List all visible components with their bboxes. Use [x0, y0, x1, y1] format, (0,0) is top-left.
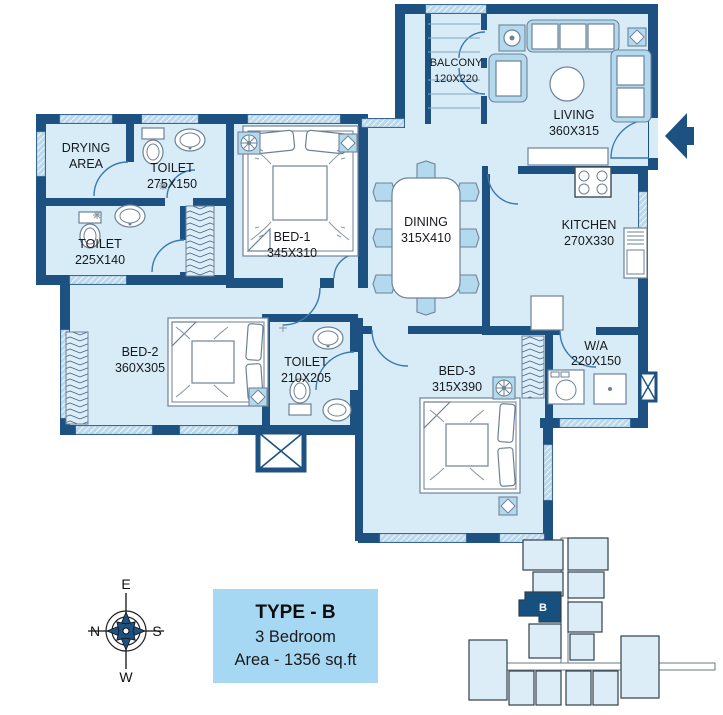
svg-text:345X310: 345X310 [267, 246, 317, 260]
svg-text:360X305: 360X305 [115, 361, 165, 375]
svg-text:315X390: 315X390 [432, 380, 482, 394]
compass: E N S W [76, 576, 176, 688]
label-kitchen: KITCHEN [562, 218, 617, 232]
label-toilet-mid: TOILET [284, 355, 328, 369]
area-label: Area - 1356 sq.ft [235, 651, 357, 670]
floor-plan-drawing: DRYING AREA TOILET 275X150 TOILET 225X14… [0, 0, 723, 562]
label-bed2: BED-2 [122, 345, 159, 359]
type-label: TYPE - B [255, 602, 335, 624]
label-wash-area: W/A [584, 339, 608, 353]
label-balcony: BALCONY [430, 57, 483, 69]
svg-text:AREA: AREA [69, 157, 104, 171]
label-toilet-left: TOILET [78, 237, 122, 251]
svg-text:120X220: 120X220 [434, 73, 478, 85]
compass-left-label: N [90, 623, 100, 639]
label-toilet-top: TOILET [150, 161, 194, 175]
svg-text:275X150: 275X150 [147, 177, 197, 191]
key-plan-unit-b: B [519, 592, 561, 622]
bed2-furniture [168, 318, 268, 406]
svg-text:225X140: 225X140 [75, 253, 125, 267]
label-dining: DINING [404, 215, 448, 229]
key-plan-unit-b-label: B [539, 602, 547, 614]
compass-bottom-label: W [119, 669, 133, 685]
label-bed1: BED-1 [274, 230, 311, 244]
svg-text:315X410: 315X410 [401, 231, 451, 245]
bedroom-count-label: 3 Bedroom [255, 628, 336, 647]
floor-plan-page: { "colors": { "wall": "#1d5181", "floor"… [0, 0, 723, 715]
label-bed3: BED-3 [439, 364, 476, 378]
compass-right-label: S [152, 623, 161, 639]
compass-top-label: E [121, 576, 130, 592]
key-plan: B [461, 530, 723, 715]
label-living: LIVING [554, 108, 595, 122]
type-info-box: TYPE - B 3 Bedroom Area - 1356 sq.ft [213, 589, 378, 683]
svg-text:220X150: 220X150 [571, 354, 621, 368]
label-drying-area: DRYING [62, 141, 110, 155]
svg-text:360X315: 360X315 [549, 124, 599, 138]
svg-text:270X330: 270X330 [564, 234, 614, 248]
svg-text:210X205: 210X205 [281, 371, 331, 385]
entry-arrow-icon [665, 113, 694, 159]
